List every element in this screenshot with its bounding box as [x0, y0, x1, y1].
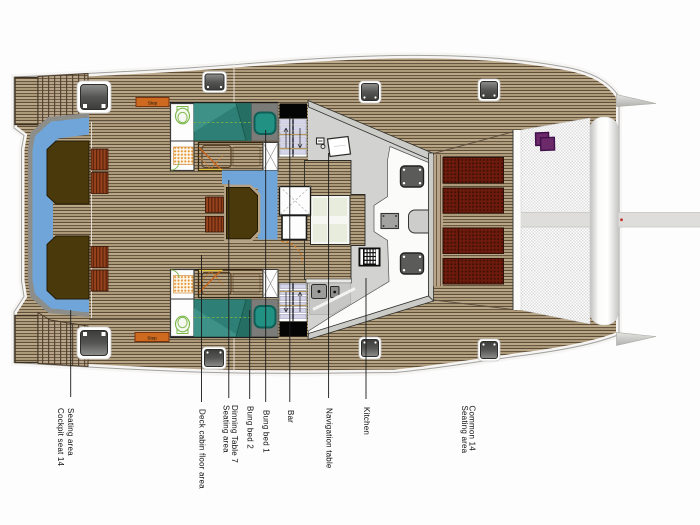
svg-text:Step: Step: [148, 100, 158, 105]
svg-text:Deck cabin floor area: Deck cabin floor area: [198, 409, 207, 489]
svg-text:Seating area: Seating area: [460, 406, 469, 454]
svg-text:Bar: Bar: [286, 410, 295, 423]
svg-text:Seating area: Seating area: [66, 408, 75, 456]
svg-text:Seating area: Seating area: [222, 405, 231, 453]
svg-text:Navigation table: Navigation table: [325, 408, 334, 469]
svg-text:Bung bed 1: Bung bed 1: [262, 410, 271, 453]
svg-text:Kitchen: Kitchen: [362, 407, 371, 435]
svg-text:Step: Step: [147, 335, 157, 340]
svg-text:Cockpit seat 14: Cockpit seat 14: [56, 408, 65, 466]
svg-text:Bung bed 2: Bung bed 2: [246, 406, 255, 449]
